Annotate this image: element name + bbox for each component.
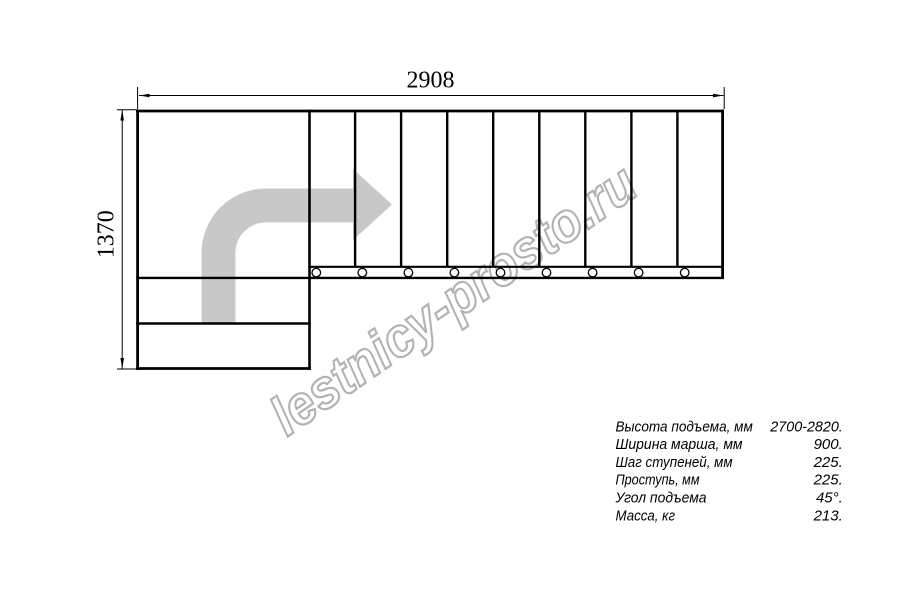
svg-text:1370: 1370	[93, 210, 119, 258]
svg-text:Высота подъема, мм: Высота подъема, мм	[616, 418, 753, 435]
svg-text:225.: 225.	[813, 472, 843, 489]
svg-text:225.: 225.	[813, 454, 843, 471]
svg-text:2700-2820.: 2700-2820.	[769, 418, 842, 435]
svg-text:Шаг ступеней, мм: Шаг ступеней, мм	[616, 454, 733, 471]
svg-text:Масса, кг: Масса, кг	[616, 507, 676, 524]
svg-text:Угол подъема: Угол подъема	[615, 490, 707, 507]
svg-text:Ширина марша, мм: Ширина марша, мм	[616, 436, 743, 453]
svg-text:2908: 2908	[407, 68, 455, 94]
svg-text:900.: 900.	[814, 436, 843, 453]
svg-text:45°.: 45°.	[816, 490, 843, 507]
svg-text:213.: 213.	[813, 507, 843, 524]
svg-text:Проступь, мм: Проступь, мм	[616, 472, 700, 489]
